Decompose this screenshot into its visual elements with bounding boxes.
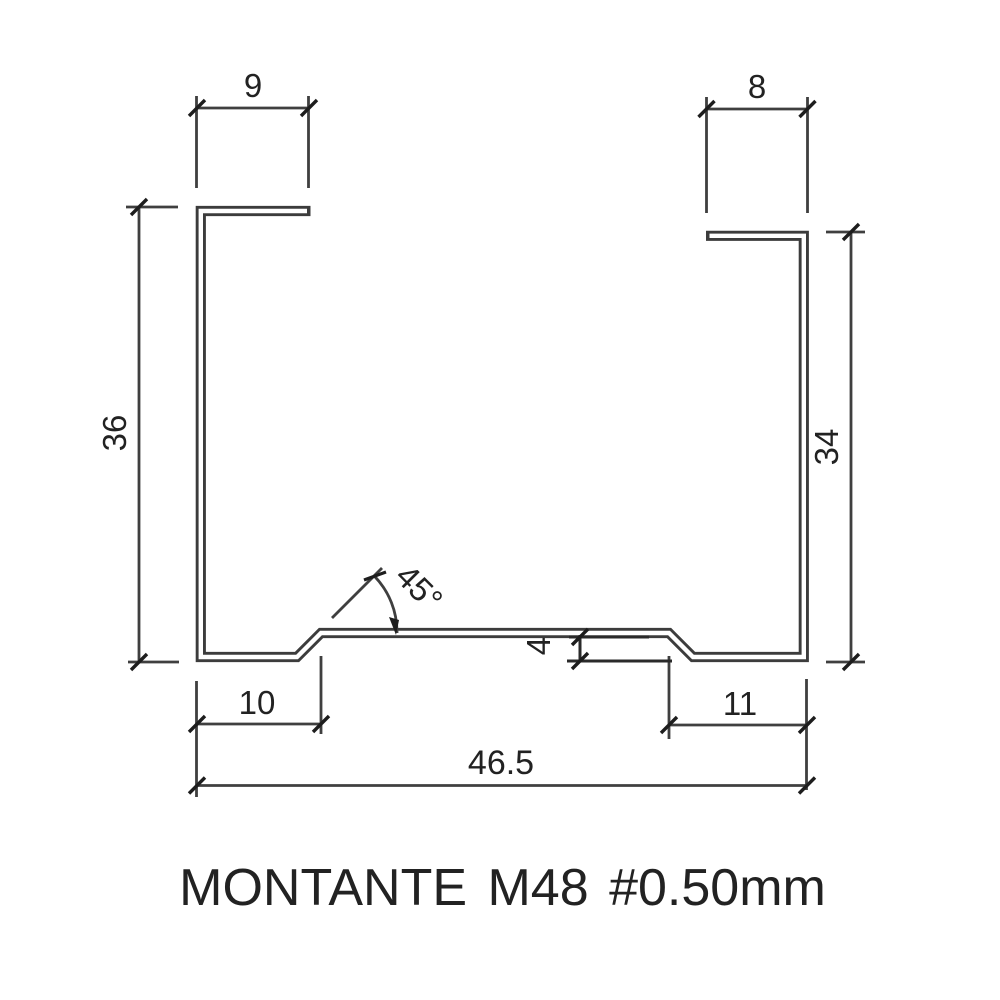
svg-text:34: 34 <box>808 429 845 466</box>
svg-text:9: 9 <box>244 67 262 104</box>
svg-text:11: 11 <box>723 685 757 722</box>
svg-text:10: 10 <box>239 684 276 721</box>
svg-text:MONTANTE M48 #0.50mm: MONTANTE M48 #0.50mm <box>179 859 826 917</box>
svg-text:36: 36 <box>96 415 133 452</box>
svg-text:46.5: 46.5 <box>468 744 534 782</box>
svg-text:8: 8 <box>748 68 766 105</box>
svg-text:4: 4 <box>520 637 557 655</box>
